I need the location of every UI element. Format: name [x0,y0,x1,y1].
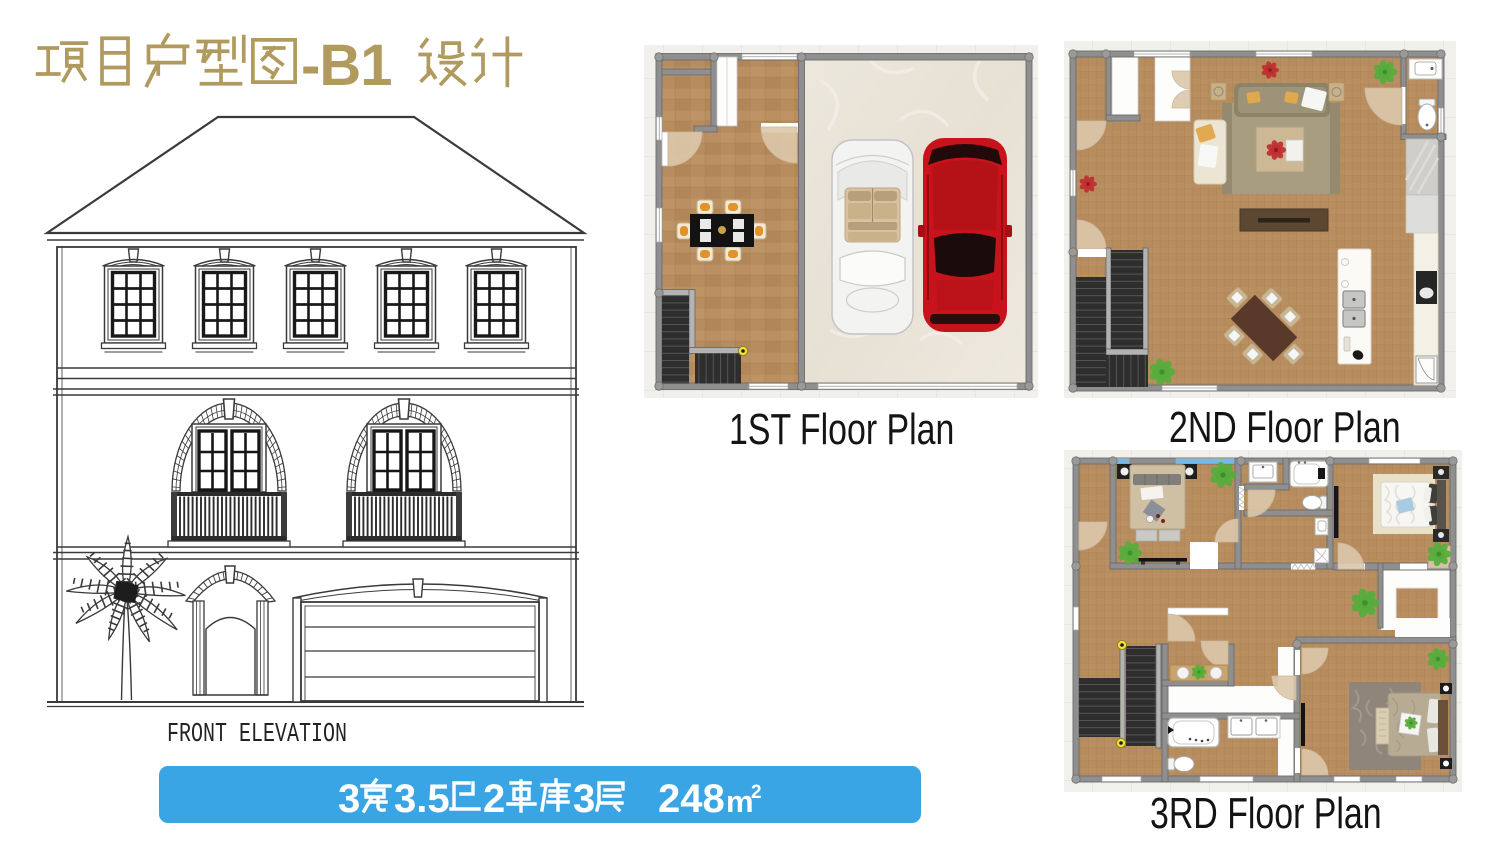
svg-text:248: 248 [658,777,725,821]
svg-text:2: 2 [751,782,762,803]
svg-text:2: 2 [483,777,505,821]
svg-text:m: m [726,784,754,819]
svg-text:3: 3 [338,777,360,821]
svg-text:3.5: 3.5 [394,777,450,821]
svg-text:FRONT ELEVATION: FRONT ELEVATION [167,720,347,750]
svg-text:3: 3 [573,777,595,821]
